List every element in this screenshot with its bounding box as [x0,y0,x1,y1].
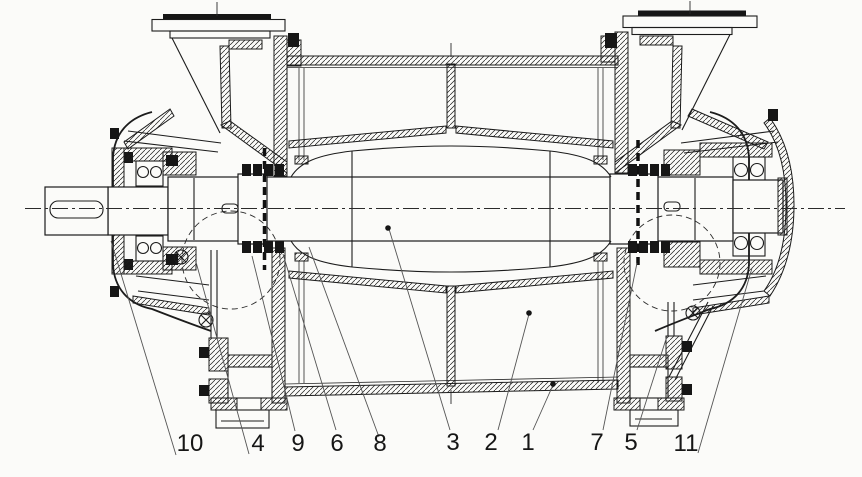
callout-5: 5 [624,429,637,456]
pump-sectional-drawing: 10 4 9 6 8 3 2 1 7 5 11 [0,0,862,477]
callout-4: 4 [251,430,264,457]
right-flange [623,16,757,28]
leader-8 [309,247,379,437]
callout-1: 1 [521,429,534,456]
shaft [45,174,787,244]
left-shaft-collar [238,174,267,244]
left-partition-wall [274,36,287,176]
left-flange [152,20,285,32]
callout-9: 9 [291,430,304,457]
callout-8: 8 [373,430,386,457]
callout-3: 3 [446,429,459,456]
leader-5 [637,336,667,430]
callouts: 10 4 9 6 8 3 2 1 7 5 11 [111,225,752,457]
right-partition-wall [615,32,628,173]
right-drain-flange [630,410,678,426]
drawing-canvas: 10 4 9 6 8 3 2 1 7 5 11 [0,0,862,477]
callout-11: 11 [674,430,699,457]
left-drain-flange [216,410,269,428]
leader-2 [498,310,532,430]
shaft-end [45,187,108,235]
right-flange-gasket [638,11,746,17]
leader-3 [385,225,450,430]
callout-2: 2 [484,429,497,456]
callout-7: 7 [590,429,603,456]
callout-6: 6 [330,430,343,457]
callout-10: 10 [177,430,204,457]
